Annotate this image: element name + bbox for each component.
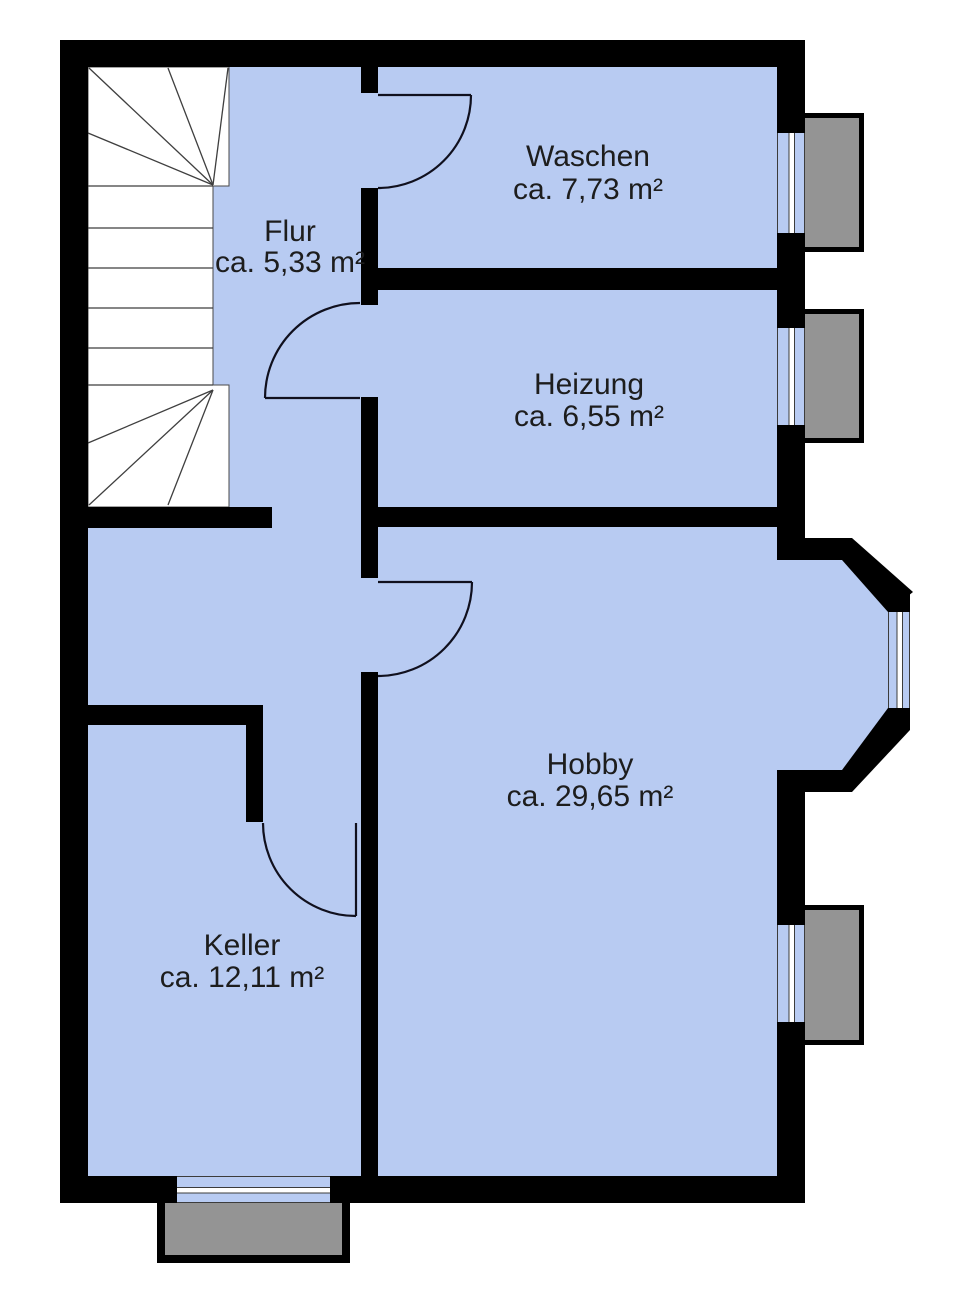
room-label-waschen-name: Waschen: [526, 140, 650, 173]
light-well-waschen: [805, 118, 859, 247]
wall-keller-corner: [246, 725, 263, 822]
wall-bay-top-bar: [777, 538, 852, 560]
light-well-keller: [165, 1203, 342, 1255]
room-label-hobby-area: ca. 29,65 m²: [507, 780, 674, 813]
room-label-hobby-name: Hobby: [547, 748, 634, 781]
wall-exterior-top: [60, 40, 805, 67]
floor-plan-page: Waschen ca. 7,73 m² Flur ca. 5,33 m² Hei…: [0, 0, 956, 1310]
staircase: [88, 67, 229, 507]
floor-plan-drawing: Waschen ca. 7,73 m² Flur ca. 5,33 m² Hei…: [0, 0, 956, 1310]
wall-bay-top-stub: [888, 592, 910, 612]
wall-exterior-right-seg5: [777, 1022, 805, 1203]
window-pane: [789, 925, 795, 1022]
wall-divider-stub-top: [361, 67, 378, 93]
wall-keller-top: [88, 705, 263, 725]
wall-bay-bottom-bar: [777, 770, 852, 792]
wall-under-stairs: [88, 507, 272, 528]
room-label-waschen-area: ca. 7,73 m²: [513, 173, 663, 206]
light-well-heizung: [805, 314, 859, 438]
room-label-flur-name: Flur: [264, 215, 316, 248]
wall-exterior-bottom-right: [330, 1176, 805, 1203]
wall-divider-seg3: [361, 672, 378, 1176]
window-pane: [177, 1188, 330, 1194]
light-well-hobby: [805, 910, 859, 1040]
wall-exterior-bottom-left: [60, 1176, 177, 1203]
room-label-keller-name: Keller: [204, 929, 281, 962]
wall-divider-seg2: [361, 397, 378, 578]
window-pane: [789, 133, 795, 233]
wall-heizung-hobby: [361, 507, 805, 527]
room-label-heizung-area: ca. 6,55 m²: [514, 400, 664, 433]
window-pane: [789, 328, 795, 425]
wall-exterior-left: [60, 40, 88, 1203]
wall-waschen-heizung: [361, 268, 805, 290]
wall-exterior-right-seg1: [777, 40, 805, 133]
wall-exterior-right-seg4: [777, 772, 805, 925]
room-label-heizung-name: Heizung: [534, 368, 644, 401]
room-label-flur-area: ca. 5,33 m²: [215, 246, 365, 279]
room-label-keller-area: ca. 12,11 m²: [160, 961, 325, 994]
window-pane: [897, 612, 903, 708]
